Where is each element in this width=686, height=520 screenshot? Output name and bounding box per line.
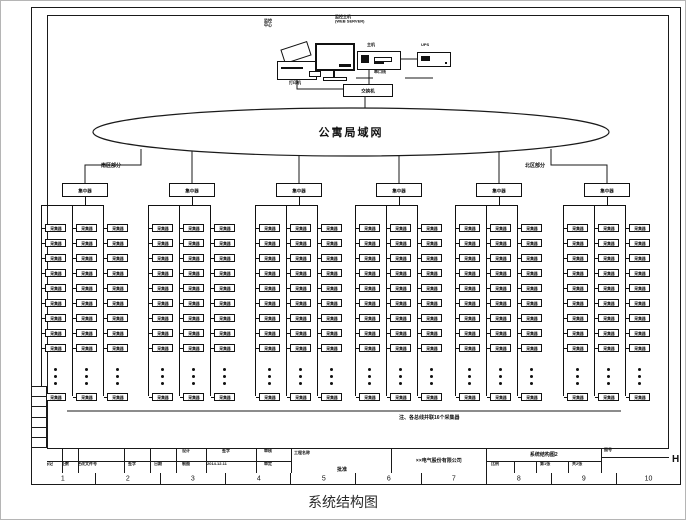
hub-box: 集中器 bbox=[376, 183, 422, 197]
device-box: 采集器 bbox=[459, 254, 480, 262]
device-label: 采集器 bbox=[326, 345, 337, 351]
device-label: 采集器 bbox=[81, 270, 92, 276]
title-block: 标记 处数 更改文件号 签字 日期 设计 签字 审核 制图 2014.12.11 bbox=[47, 448, 669, 473]
device-box: 采集器 bbox=[321, 254, 342, 262]
device-box: 采集器 bbox=[107, 299, 128, 307]
device-box: 采集器 bbox=[183, 329, 204, 337]
device-box: 采集器 bbox=[321, 269, 342, 277]
device-box: 采集器 bbox=[421, 314, 442, 322]
ups-icon bbox=[417, 52, 451, 67]
device-label: 采集器 bbox=[495, 315, 506, 321]
device-label: 采集器 bbox=[264, 285, 275, 291]
device-label: 采集器 bbox=[81, 255, 92, 261]
device-column: 采集器采集器采集器采集器采集器采集器采集器采集器采集器采集器 bbox=[417, 206, 443, 396]
device-label: 采集器 bbox=[112, 240, 123, 246]
device-label: 采集器 bbox=[188, 255, 199, 261]
device-column: 采集器采集器采集器采集器采集器采集器采集器采集器采集器采集器 bbox=[594, 206, 620, 396]
device-box: 采集器 bbox=[183, 299, 204, 307]
device-label: 采集器 bbox=[50, 285, 61, 291]
device-box: 采集器 bbox=[321, 393, 342, 401]
device-box: 采集器 bbox=[629, 224, 650, 232]
device-column: 采集器采集器采集器采集器采集器采集器采集器采集器采集器采集器 bbox=[210, 206, 236, 396]
device-column: 采集器采集器采集器采集器采集器采集器采集器采集器采集器采集器 bbox=[625, 206, 651, 396]
device-box: 采集器 bbox=[152, 329, 173, 337]
device-box: 采集器 bbox=[45, 269, 66, 277]
device-box: 采集器 bbox=[490, 239, 511, 247]
rev-label: 日期 bbox=[154, 462, 162, 466]
device-box: 采集器 bbox=[214, 224, 235, 232]
console-label: 监控中心 bbox=[264, 19, 284, 41]
device-box: 采集器 bbox=[107, 393, 128, 401]
device-box: 采集器 bbox=[214, 299, 235, 307]
device-box: 采集器 bbox=[76, 239, 97, 247]
device-label: 采集器 bbox=[572, 394, 583, 400]
device-label: 采集器 bbox=[464, 255, 475, 261]
company-name: ××电气股份有限公司 bbox=[416, 459, 462, 464]
device-box: 采集器 bbox=[321, 284, 342, 292]
device-box: 采集器 bbox=[45, 224, 66, 232]
device-box: 采集器 bbox=[152, 299, 173, 307]
device-box: 采集器 bbox=[45, 299, 66, 307]
printer-label: 打印机 bbox=[289, 81, 319, 92]
device-label: 采集器 bbox=[326, 270, 337, 276]
device-box: 采集器 bbox=[629, 284, 650, 292]
device-box: 采集器 bbox=[290, 269, 311, 277]
device-label: 采集器 bbox=[364, 255, 375, 261]
device-box: 采集器 bbox=[521, 299, 542, 307]
device-label: 采集器 bbox=[157, 394, 168, 400]
device-label: 采集器 bbox=[395, 330, 406, 336]
device-label: 采集器 bbox=[634, 330, 645, 336]
device-label: 采集器 bbox=[81, 285, 92, 291]
hub-box: 集中器 bbox=[276, 183, 322, 197]
hub-box: 集中器 bbox=[62, 183, 108, 197]
device-label: 采集器 bbox=[81, 300, 92, 306]
device-label: 采集器 bbox=[81, 394, 92, 400]
device-box: 采集器 bbox=[390, 299, 411, 307]
ellipsis-dots bbox=[76, 359, 97, 393]
device-label: 采集器 bbox=[157, 315, 168, 321]
row-letter: H bbox=[672, 449, 679, 467]
device-box: 采集器 bbox=[152, 393, 173, 401]
project-label: 工程名称 bbox=[294, 451, 310, 455]
device-box: 采集器 bbox=[521, 254, 542, 262]
device-label: 采集器 bbox=[50, 330, 61, 336]
device-box: 采集器 bbox=[76, 254, 97, 262]
device-label: 采集器 bbox=[464, 300, 475, 306]
ellipsis-dots bbox=[290, 359, 311, 393]
device-label: 采集器 bbox=[634, 285, 645, 291]
device-label: 采集器 bbox=[464, 240, 475, 246]
ellipsis-dots bbox=[214, 359, 235, 393]
device-box: 采集器 bbox=[390, 314, 411, 322]
device-label: 采集器 bbox=[112, 255, 123, 261]
hub-group: 集中器采集器采集器采集器采集器采集器采集器采集器采集器采集器采集器采集器采集器采… bbox=[148, 183, 236, 396]
device-box: 采集器 bbox=[359, 344, 380, 352]
device-box: 采集器 bbox=[598, 314, 619, 322]
device-label: 采集器 bbox=[603, 315, 614, 321]
device-box: 采集器 bbox=[359, 269, 380, 277]
device-label: 采集器 bbox=[219, 240, 230, 246]
device-label: 采集器 bbox=[426, 240, 437, 246]
device-box: 采集器 bbox=[390, 329, 411, 337]
device-label: 采集器 bbox=[603, 240, 614, 246]
device-box: 采集器 bbox=[459, 314, 480, 322]
device-label: 采集器 bbox=[395, 394, 406, 400]
device-label: 采集器 bbox=[495, 270, 506, 276]
hub-drop-line bbox=[607, 197, 608, 205]
ellipsis-dots bbox=[183, 359, 204, 393]
device-label: 采集器 bbox=[426, 270, 437, 276]
device-box: 采集器 bbox=[107, 344, 128, 352]
device-box: 采集器 bbox=[45, 329, 66, 337]
device-label: 采集器 bbox=[526, 345, 537, 351]
device-column: 采集器采集器采集器采集器采集器采集器采集器采集器采集器采集器 bbox=[486, 206, 512, 396]
device-label: 采集器 bbox=[364, 225, 375, 231]
device-label: 采集器 bbox=[426, 300, 437, 306]
hub-label: 集中器 bbox=[492, 187, 506, 194]
device-label: 采集器 bbox=[603, 225, 614, 231]
device-label: 采集器 bbox=[50, 255, 61, 261]
device-label: 采集器 bbox=[326, 285, 337, 291]
device-box: 采集器 bbox=[459, 269, 480, 277]
device-label: 采集器 bbox=[364, 270, 375, 276]
revision-section: 标记 处数 更改文件号 签字 日期 bbox=[47, 449, 177, 473]
rev-label: 更改文件号 bbox=[79, 462, 97, 466]
ellipsis-dots bbox=[459, 359, 480, 393]
device-label: 采集器 bbox=[81, 345, 92, 351]
device-box: 采集器 bbox=[490, 224, 511, 232]
device-label: 采集器 bbox=[326, 240, 337, 246]
device-label: 采集器 bbox=[395, 270, 406, 276]
device-label: 采集器 bbox=[326, 330, 337, 336]
device-column: 采集器采集器采集器采集器采集器采集器采集器采集器采集器采集器 bbox=[103, 206, 129, 396]
device-box: 采集器 bbox=[76, 314, 97, 322]
device-box: 采集器 bbox=[567, 224, 588, 232]
device-column: 采集器采集器采集器采集器采集器采集器采集器采集器采集器采集器 bbox=[255, 206, 281, 396]
device-box: 采集器 bbox=[598, 239, 619, 247]
device-box: 采集器 bbox=[490, 284, 511, 292]
device-box: 采集器 bbox=[390, 344, 411, 352]
device-label: 采集器 bbox=[295, 270, 306, 276]
device-label: 采集器 bbox=[634, 240, 645, 246]
device-box: 采集器 bbox=[521, 224, 542, 232]
device-label: 采集器 bbox=[364, 285, 375, 291]
hub-label: 集中器 bbox=[185, 187, 199, 194]
device-box: 采集器 bbox=[183, 239, 204, 247]
device-label: 采集器 bbox=[464, 345, 475, 351]
device-box: 采集器 bbox=[598, 224, 619, 232]
device-box: 采集器 bbox=[290, 314, 311, 322]
device-label: 采集器 bbox=[603, 345, 614, 351]
device-label: 采集器 bbox=[426, 285, 437, 291]
hub-label: 集中器 bbox=[392, 187, 406, 194]
device-label: 采集器 bbox=[219, 345, 230, 351]
device-box: 采集器 bbox=[107, 329, 128, 337]
device-box: 采集器 bbox=[567, 269, 588, 277]
device-box: 采集器 bbox=[629, 239, 650, 247]
device-box: 采集器 bbox=[629, 269, 650, 277]
device-box: 采集器 bbox=[183, 393, 204, 401]
device-label: 采集器 bbox=[81, 240, 92, 246]
device-column: 采集器采集器采集器采集器采集器采集器采集器采集器采集器采集器 bbox=[148, 206, 174, 396]
device-box: 采集器 bbox=[214, 284, 235, 292]
device-label: 采集器 bbox=[219, 300, 230, 306]
device-label: 采集器 bbox=[326, 225, 337, 231]
device-label: 采集器 bbox=[188, 270, 199, 276]
hub-box: 集中器 bbox=[169, 183, 215, 197]
device-column: 采集器采集器采集器采集器采集器采集器采集器采集器采集器采集器 bbox=[563, 206, 589, 396]
device-label: 采集器 bbox=[188, 345, 199, 351]
device-label: 采集器 bbox=[295, 315, 306, 321]
border-grid-number: 2 bbox=[96, 473, 161, 485]
device-box: 采集器 bbox=[598, 254, 619, 262]
device-label: 采集器 bbox=[188, 240, 199, 246]
north-zone-label: 北区部分 bbox=[525, 163, 565, 175]
device-label: 采集器 bbox=[526, 285, 537, 291]
approve-label: 批准 bbox=[337, 468, 347, 473]
lan-label: 公寓局域网 bbox=[251, 124, 451, 140]
device-box: 采集器 bbox=[290, 329, 311, 337]
device-label: 采集器 bbox=[364, 300, 375, 306]
device-column: 采集器采集器采集器采集器采集器采集器采集器采集器采集器采集器 bbox=[455, 206, 481, 396]
device-box: 采集器 bbox=[390, 284, 411, 292]
device-box: 采集器 bbox=[521, 284, 542, 292]
hub-box: 集中器 bbox=[584, 183, 630, 197]
device-label: 采集器 bbox=[188, 300, 199, 306]
page-title: 系统结构图 bbox=[1, 492, 685, 512]
device-box: 采集器 bbox=[107, 269, 128, 277]
device-label: 采集器 bbox=[572, 270, 583, 276]
device-box: 采集器 bbox=[598, 393, 619, 401]
device-label: 采集器 bbox=[264, 330, 275, 336]
device-label: 采集器 bbox=[81, 225, 92, 231]
device-label: 采集器 bbox=[572, 240, 583, 246]
device-box: 采集器 bbox=[490, 393, 511, 401]
hub-group: 集中器采集器采集器采集器采集器采集器采集器采集器采集器采集器采集器采集器采集器采… bbox=[255, 183, 343, 396]
device-box: 采集器 bbox=[76, 224, 97, 232]
device-label: 采集器 bbox=[526, 240, 537, 246]
device-box: 采集器 bbox=[359, 393, 380, 401]
border-grid-number: 4 bbox=[226, 473, 291, 485]
device-label: 采集器 bbox=[112, 315, 123, 321]
device-label: 采集器 bbox=[50, 270, 61, 276]
device-box: 采集器 bbox=[521, 269, 542, 277]
device-label: 采集器 bbox=[495, 330, 506, 336]
device-label: 采集器 bbox=[157, 225, 168, 231]
device-box: 采集器 bbox=[421, 254, 442, 262]
device-label: 采集器 bbox=[634, 225, 645, 231]
device-box: 采集器 bbox=[459, 224, 480, 232]
device-box: 采集器 bbox=[76, 299, 97, 307]
device-label: 采集器 bbox=[495, 394, 506, 400]
device-label: 采集器 bbox=[326, 255, 337, 261]
hub-drop-line bbox=[399, 197, 400, 205]
device-label: 采集器 bbox=[526, 394, 537, 400]
device-label: 采集器 bbox=[426, 345, 437, 351]
device-column: 采集器采集器采集器采集器采集器采集器采集器采集器采集器采集器 bbox=[179, 206, 205, 396]
device-label: 采集器 bbox=[572, 225, 583, 231]
device-label: 采集器 bbox=[50, 394, 61, 400]
device-box: 采集器 bbox=[183, 269, 204, 277]
device-box: 采集器 bbox=[421, 344, 442, 352]
device-label: 采集器 bbox=[603, 255, 614, 261]
device-box: 采集器 bbox=[359, 299, 380, 307]
device-label: 采集器 bbox=[295, 255, 306, 261]
device-label: 采集器 bbox=[495, 240, 506, 246]
switch-label: 交换机 bbox=[361, 87, 375, 94]
device-box: 采集器 bbox=[107, 224, 128, 232]
device-box: 采集器 bbox=[259, 329, 280, 337]
device-label: 采集器 bbox=[112, 345, 123, 351]
device-box: 采集器 bbox=[459, 284, 480, 292]
printer-slot bbox=[281, 67, 303, 69]
device-box: 采集器 bbox=[107, 239, 128, 247]
device-label: 采集器 bbox=[395, 255, 406, 261]
device-label: 采集器 bbox=[264, 240, 275, 246]
drawing-canvas: 公寓局域网 监控中心 监控主机(WEB SERVER) 打印机 主机 UPS 串… bbox=[0, 0, 686, 520]
device-box: 采集器 bbox=[598, 284, 619, 292]
device-box: 采集器 bbox=[490, 344, 511, 352]
device-box: 采集器 bbox=[76, 269, 97, 277]
device-column: 采集器采集器采集器采集器采集器采集器采集器采集器采集器采集器 bbox=[72, 206, 98, 396]
device-label: 采集器 bbox=[464, 315, 475, 321]
device-box: 采集器 bbox=[521, 239, 542, 247]
device-label: 采集器 bbox=[50, 345, 61, 351]
device-label: 采集器 bbox=[495, 345, 506, 351]
device-column: 采集器采集器采集器采集器采集器采集器采集器采集器采集器采集器 bbox=[317, 206, 343, 396]
device-box: 采集器 bbox=[359, 254, 380, 262]
device-box: 采集器 bbox=[321, 344, 342, 352]
border-grid-number: 8 bbox=[487, 473, 552, 485]
device-label: 采集器 bbox=[264, 315, 275, 321]
hub-group: 集中器采集器采集器采集器采集器采集器采集器采集器采集器采集器采集器采集器采集器采… bbox=[455, 183, 543, 396]
device-box: 采集器 bbox=[76, 284, 97, 292]
device-box: 采集器 bbox=[45, 314, 66, 322]
device-box: 采集器 bbox=[421, 224, 442, 232]
device-label: 采集器 bbox=[295, 345, 306, 351]
device-box: 采集器 bbox=[45, 393, 66, 401]
device-label: 采集器 bbox=[157, 240, 168, 246]
device-box: 采集器 bbox=[45, 344, 66, 352]
device-box: 采集器 bbox=[390, 239, 411, 247]
device-label: 采集器 bbox=[603, 270, 614, 276]
device-label: 采集器 bbox=[219, 225, 230, 231]
device-label: 采集器 bbox=[112, 394, 123, 400]
device-label: 采集器 bbox=[50, 300, 61, 306]
device-label: 采集器 bbox=[572, 285, 583, 291]
device-label: 采集器 bbox=[464, 225, 475, 231]
device-box: 采集器 bbox=[459, 393, 480, 401]
device-label: 采集器 bbox=[395, 285, 406, 291]
ellipsis-dots bbox=[629, 359, 650, 393]
printer-tray bbox=[309, 71, 321, 77]
device-box: 采集器 bbox=[390, 254, 411, 262]
device-label: 采集器 bbox=[188, 330, 199, 336]
device-box: 采集器 bbox=[152, 224, 173, 232]
device-box: 采集器 bbox=[459, 329, 480, 337]
device-box: 采集器 bbox=[567, 329, 588, 337]
device-label: 采集器 bbox=[264, 394, 275, 400]
device-box: 采集器 bbox=[521, 329, 542, 337]
device-box: 采集器 bbox=[421, 329, 442, 337]
device-box: 采集器 bbox=[598, 344, 619, 352]
device-label: 采集器 bbox=[364, 315, 375, 321]
device-label: 采集器 bbox=[219, 285, 230, 291]
device-box: 采集器 bbox=[629, 329, 650, 337]
device-box: 采集器 bbox=[214, 269, 235, 277]
monitor-icon bbox=[315, 43, 355, 71]
device-label: 采集器 bbox=[495, 285, 506, 291]
device-box: 采集器 bbox=[259, 393, 280, 401]
project-name-section: 工程名称 批准 bbox=[292, 449, 392, 473]
device-box: 采集器 bbox=[359, 239, 380, 247]
device-box: 采集器 bbox=[152, 239, 173, 247]
device-label: 采集器 bbox=[219, 330, 230, 336]
device-box: 采集器 bbox=[152, 344, 173, 352]
device-box: 采集器 bbox=[459, 344, 480, 352]
device-label: 采集器 bbox=[364, 394, 375, 400]
device-column: 采集器采集器采集器采集器采集器采集器采集器采集器采集器采集器 bbox=[386, 206, 412, 396]
device-box: 采集器 bbox=[567, 254, 588, 262]
device-label: 采集器 bbox=[50, 315, 61, 321]
device-box: 采集器 bbox=[214, 254, 235, 262]
device-box: 采集器 bbox=[459, 299, 480, 307]
device-label: 采集器 bbox=[634, 315, 645, 321]
device-box: 采集器 bbox=[214, 329, 235, 337]
device-label: 采集器 bbox=[395, 225, 406, 231]
device-column: 采集器采集器采集器采集器采集器采集器采集器采集器采集器采集器 bbox=[355, 206, 381, 396]
device-box: 采集器 bbox=[598, 269, 619, 277]
device-box: 采集器 bbox=[152, 284, 173, 292]
device-box: 采集器 bbox=[259, 299, 280, 307]
figure-number-section: 图号 bbox=[602, 449, 669, 473]
device-label: 采集器 bbox=[395, 240, 406, 246]
device-label: 采集器 bbox=[157, 270, 168, 276]
device-box: 采集器 bbox=[76, 329, 97, 337]
device-box: 采集器 bbox=[359, 314, 380, 322]
device-box: 采集器 bbox=[598, 299, 619, 307]
device-column: 采集器采集器采集器采集器采集器采集器采集器采集器采集器采集器 bbox=[517, 206, 543, 396]
device-label: 采集器 bbox=[264, 255, 275, 261]
device-box: 采集器 bbox=[359, 224, 380, 232]
device-box: 采集器 bbox=[107, 284, 128, 292]
hub-drop-line bbox=[85, 197, 86, 205]
device-label: 采集器 bbox=[634, 394, 645, 400]
device-box: 采集器 bbox=[183, 254, 204, 262]
device-box: 采集器 bbox=[152, 269, 173, 277]
device-box: 采集器 bbox=[490, 314, 511, 322]
device-box: 采集器 bbox=[259, 284, 280, 292]
device-box: 采集器 bbox=[567, 284, 588, 292]
device-label: 采集器 bbox=[295, 285, 306, 291]
device-label: 采集器 bbox=[112, 285, 123, 291]
device-box: 采集器 bbox=[421, 299, 442, 307]
device-box: 采集器 bbox=[459, 239, 480, 247]
device-label: 采集器 bbox=[219, 255, 230, 261]
device-box: 采集器 bbox=[567, 299, 588, 307]
hub-drop-line bbox=[299, 197, 300, 205]
device-label: 采集器 bbox=[364, 345, 375, 351]
device-box: 采集器 bbox=[629, 254, 650, 262]
device-box: 采集器 bbox=[45, 239, 66, 247]
device-label: 采集器 bbox=[395, 300, 406, 306]
device-box: 采集器 bbox=[490, 254, 511, 262]
device-label: 采集器 bbox=[326, 315, 337, 321]
device-label: 采集器 bbox=[219, 394, 230, 400]
device-label: 采集器 bbox=[495, 255, 506, 261]
ellipsis-dots bbox=[259, 359, 280, 393]
